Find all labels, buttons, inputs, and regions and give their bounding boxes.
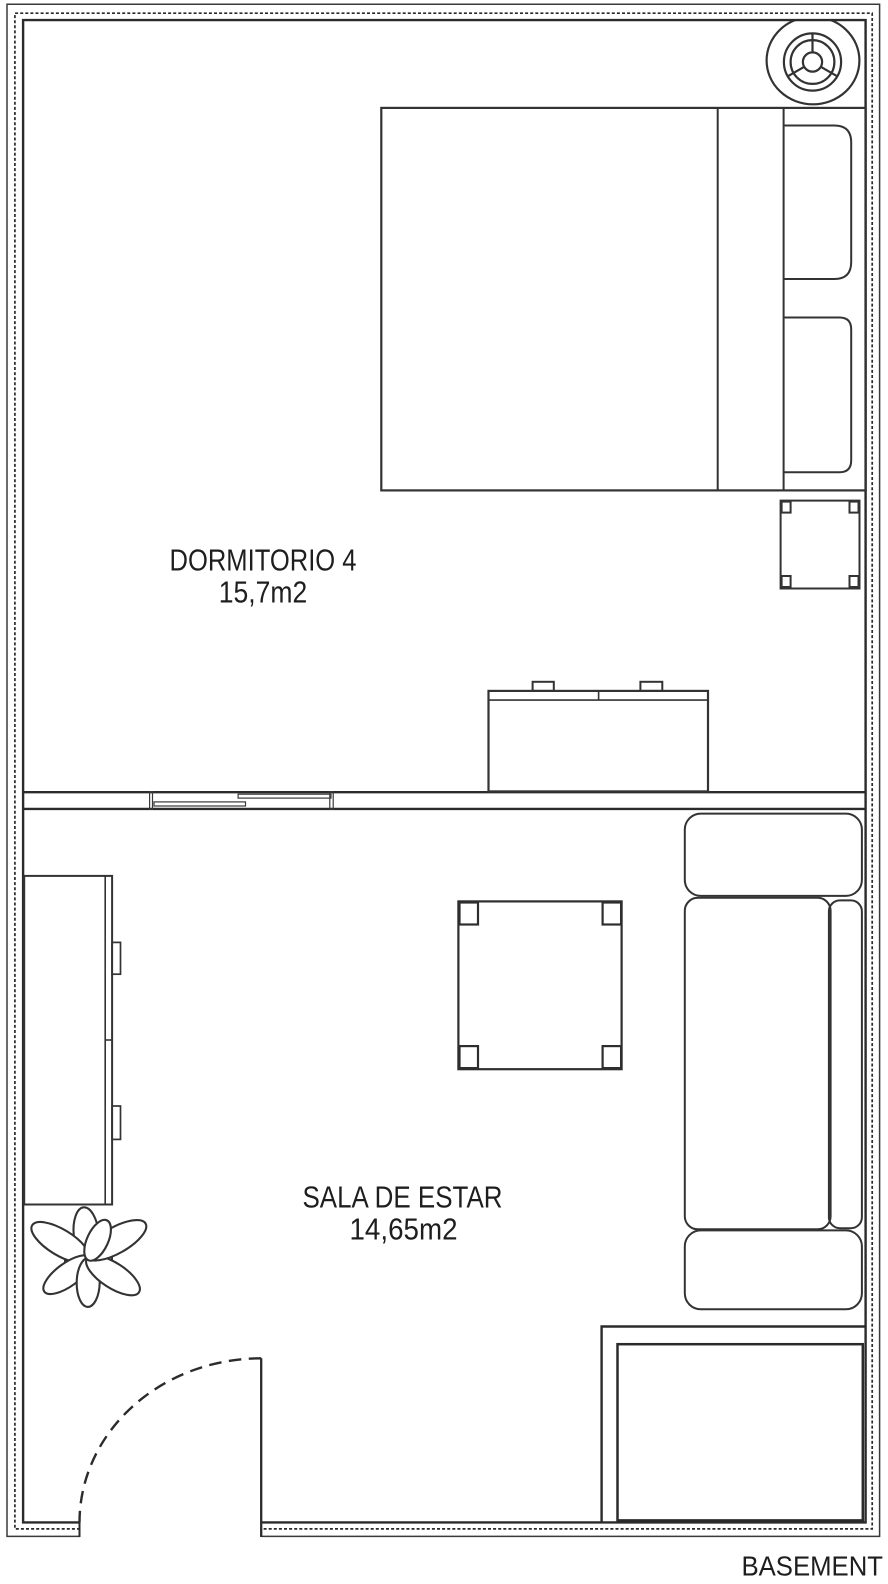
svg-text:SALA DE ESTAR: SALA DE ESTAR [303, 1180, 503, 1214]
svg-text:14,65m2: 14,65m2 [350, 1212, 458, 1246]
svg-text:15,7m2: 15,7m2 [219, 575, 308, 609]
svg-text:BASEMENT: BASEMENT [742, 1550, 884, 1581]
svg-text:DORMITORIO 4: DORMITORIO 4 [170, 543, 357, 577]
